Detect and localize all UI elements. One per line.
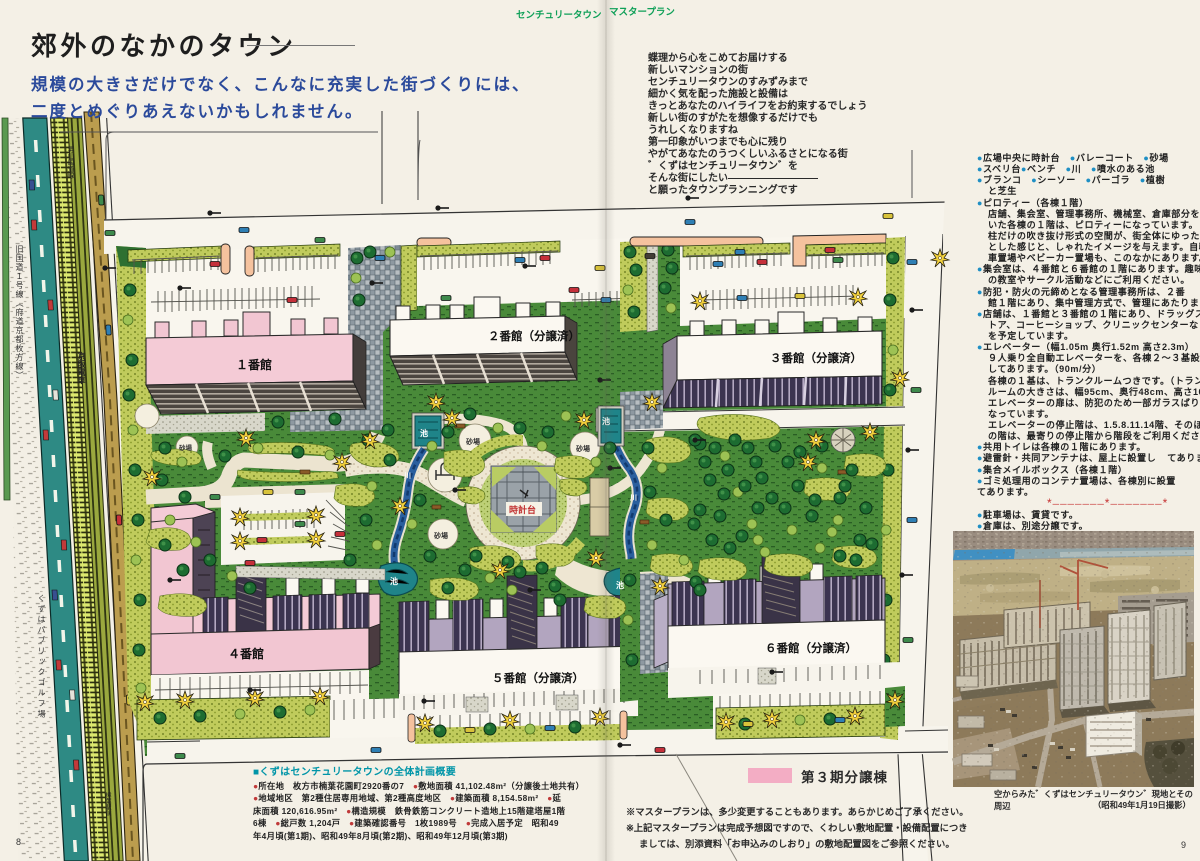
- svg-text:砂場: 砂場: [466, 437, 480, 446]
- svg-text:１番館: １番館: [236, 357, 272, 372]
- svg-text:５番館（分譲済）: ５番館（分譲済）: [492, 671, 584, 685]
- svg-text:６番館（分譲済）: ６番館（分譲済）: [765, 641, 857, 655]
- svg-text:池: 池: [390, 576, 398, 586]
- svg-text:川: 川: [403, 472, 411, 480]
- svg-text:砂場: 砂場: [576, 444, 590, 453]
- svg-text:砂場: 砂場: [434, 531, 448, 540]
- svg-text:池: 池: [420, 428, 428, 438]
- svg-text:川: 川: [629, 494, 637, 502]
- svg-text:２番館（分譲済）: ２番館（分譲済）: [488, 329, 580, 343]
- svg-text:３番館（分譲済）: ３番館（分譲済）: [770, 351, 862, 365]
- svg-text:時計台: 時計台: [509, 504, 536, 515]
- svg-text:砂場: 砂場: [179, 443, 193, 452]
- svg-text:４番館: ４番館: [228, 646, 264, 661]
- svg-text:池: 池: [616, 580, 624, 590]
